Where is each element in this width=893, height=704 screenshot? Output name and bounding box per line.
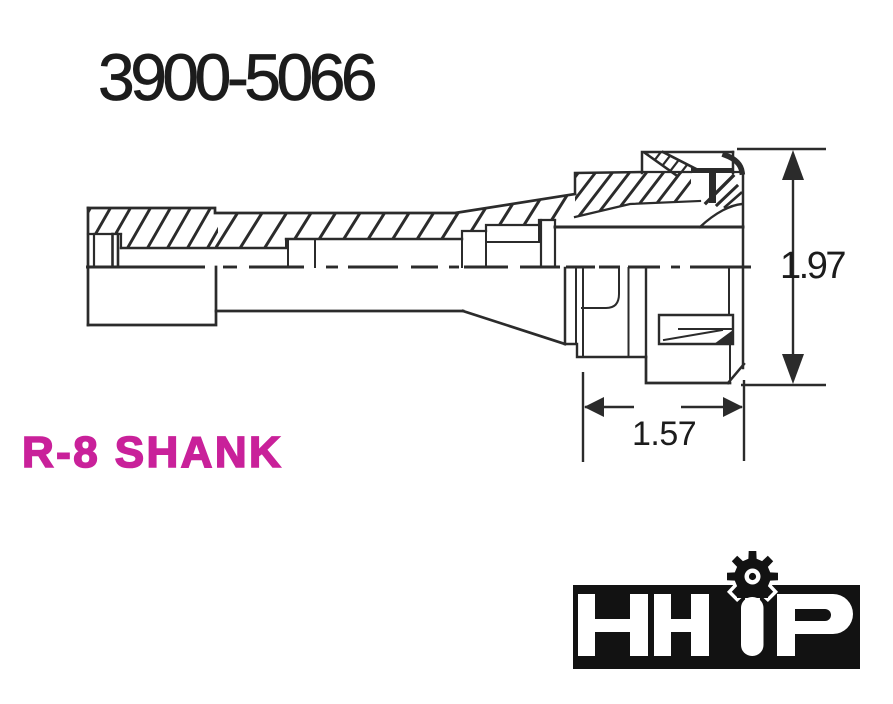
svg-text:3900-5066: 3900-5066 — [98, 40, 375, 114]
svg-text:1.57: 1.57 — [632, 415, 696, 453]
svg-text:R-8 SHANK: R-8 SHANK — [22, 428, 283, 477]
svg-text:1.97: 1.97 — [780, 245, 845, 287]
